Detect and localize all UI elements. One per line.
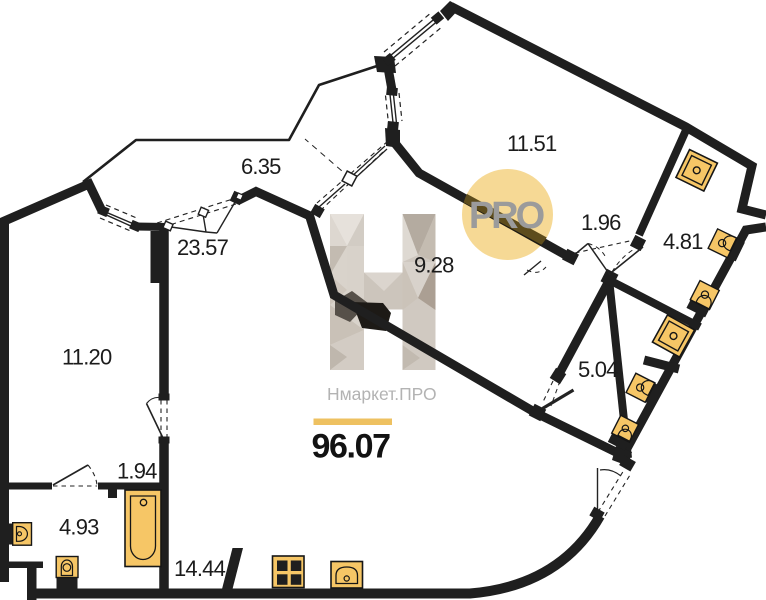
svg-text:5.04: 5.04 (578, 357, 618, 382)
svg-text:PRO: PRO (469, 195, 544, 237)
svg-text:Нмаркет.ПРО: Нмаркет.ПРО (327, 384, 437, 404)
svg-text:14.44: 14.44 (174, 556, 226, 581)
svg-text:23.57: 23.57 (177, 235, 229, 260)
svg-text:9.28: 9.28 (414, 253, 454, 278)
svg-text:11.20: 11.20 (62, 345, 112, 370)
svg-text:6.35: 6.35 (241, 154, 281, 179)
svg-text:1.94: 1.94 (117, 459, 157, 484)
svg-text:96.07: 96.07 (312, 428, 391, 466)
svg-text:11.51: 11.51 (507, 131, 557, 156)
svg-text:4.93: 4.93 (59, 515, 99, 540)
svg-text:1.96: 1.96 (581, 210, 621, 235)
svg-text:4.81: 4.81 (663, 229, 703, 254)
